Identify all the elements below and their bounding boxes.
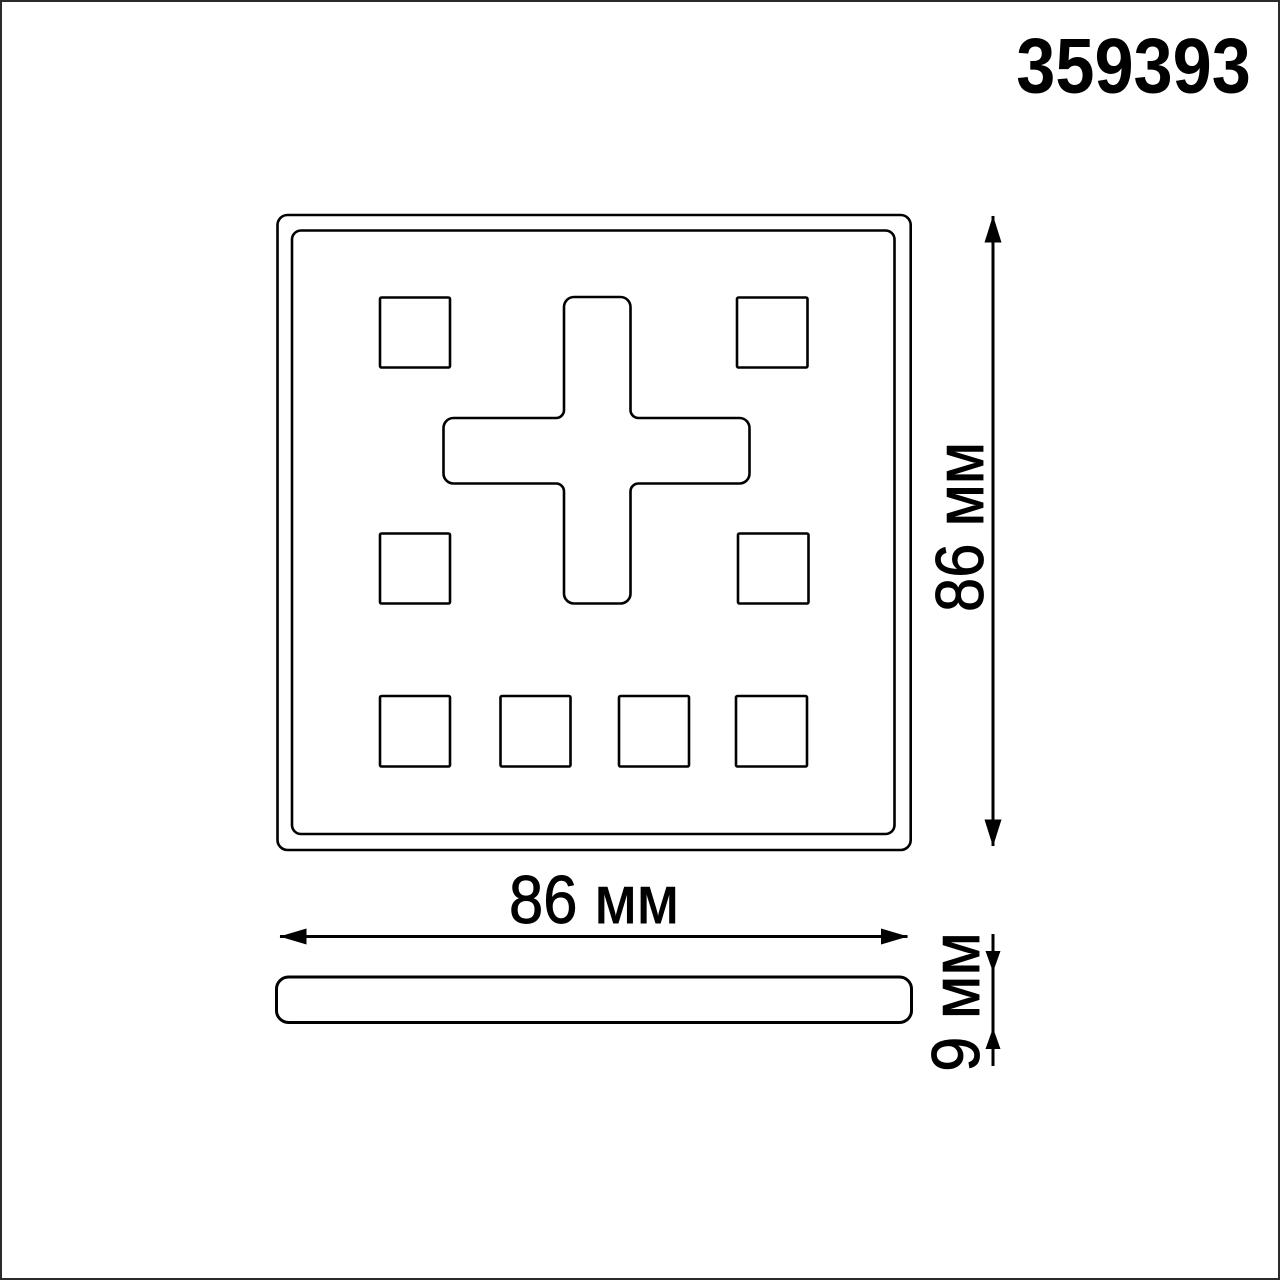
svg-text:359393: 359393 [1016, 22, 1251, 110]
svg-text:9 мм: 9 мм [918, 932, 994, 1072]
svg-text:86 мм: 86 мм [509, 862, 679, 938]
svg-text:86 мм: 86 мм [922, 442, 998, 612]
